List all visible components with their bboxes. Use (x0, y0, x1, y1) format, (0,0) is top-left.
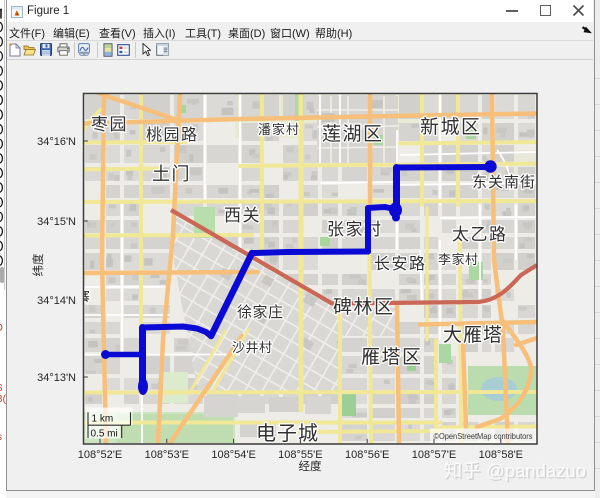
svg-text:枣园: 枣园 (91, 115, 128, 134)
svg-text:1 km: 1 km (92, 414, 114, 425)
svg-text:新城区: 新城区 (420, 116, 482, 138)
svg-text:张家村: 张家村 (327, 220, 383, 239)
svg-text:太乙路: 太乙路 (452, 225, 508, 244)
svg-text:©OpenStreetMap contributors: ©OpenStreetMap contributors (434, 431, 533, 441)
svg-text:西关: 西关 (224, 206, 261, 225)
svg-text:潘家村: 潘家村 (258, 122, 300, 137)
svg-text:108°56'E: 108°56'E (345, 449, 389, 461)
svg-text:李家村: 李家村 (438, 252, 479, 267)
svg-text:徐家庄: 徐家庄 (237, 303, 284, 321)
svg-text:东关南街: 东关南街 (472, 174, 536, 191)
svg-text:34°13'N: 34°13'N (37, 372, 76, 384)
svg-text:莲湖区: 莲湖区 (322, 123, 384, 145)
svg-text:108°54'E: 108°54'E (211, 449, 255, 461)
svg-text:沙井村: 沙井村 (232, 340, 273, 355)
svg-text:碑林区: 碑林区 (333, 296, 395, 318)
svg-text:桃园路: 桃园路 (146, 126, 199, 144)
svg-text:108°53'E: 108°53'E (145, 449, 189, 461)
svg-text:长安路: 长安路 (374, 255, 427, 273)
svg-text:34°16'N: 34°16'N (37, 136, 76, 148)
svg-text:108°55'E: 108°55'E (278, 449, 322, 461)
svg-text:纬度: 纬度 (31, 253, 45, 276)
svg-text:知乎 @pandazuo: 知乎 @pandazuo (444, 460, 586, 481)
svg-text:土门: 土门 (152, 164, 191, 184)
svg-text:0.5 mi: 0.5 mi (91, 429, 118, 440)
svg-text:经度: 经度 (299, 459, 322, 473)
svg-text:电子城: 电子城 (256, 422, 319, 445)
svg-text:大雁塔: 大雁塔 (443, 324, 503, 346)
svg-text:108°52'E: 108°52'E (78, 449, 122, 461)
svg-text:34°14'N: 34°14'N (37, 295, 76, 307)
svg-text:雁塔区: 雁塔区 (361, 346, 423, 368)
svg-text:34°15'N: 34°15'N (37, 216, 76, 228)
